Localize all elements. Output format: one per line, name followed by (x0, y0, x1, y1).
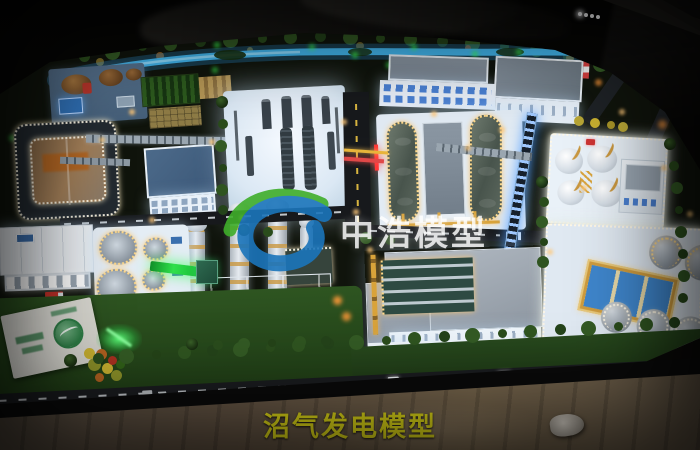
green-laser-glow (96, 324, 142, 354)
gasholder-mid-building (422, 122, 465, 219)
globe-arc (58, 324, 79, 340)
sign-green-text-mark (51, 306, 77, 316)
feedstock-platform (48, 63, 148, 126)
lattice-mast (335, 107, 340, 153)
grey-storage-tank (649, 235, 684, 270)
tank-sheen (479, 133, 496, 142)
dome-tank-platform (546, 133, 669, 229)
green-globe-logo (51, 316, 87, 352)
office-building-a (379, 54, 497, 110)
process-tower (321, 96, 330, 124)
gold-feed-pipe (568, 143, 583, 161)
long-digester-tank (470, 115, 502, 221)
trees-near-workshop (186, 338, 198, 350)
tank-sheen (395, 137, 411, 146)
grey-storage-tank (600, 301, 632, 333)
process-column (280, 128, 295, 191)
photo-biogas-plant-scale-model: 中浩模型 沼气发电模型 (0, 0, 700, 450)
sign-green-text-mark (15, 332, 44, 345)
building-b-roof (494, 56, 584, 103)
blue-placard (171, 237, 182, 244)
boulevard-trees-front (64, 354, 77, 367)
red-led-strip (374, 145, 379, 171)
white-dome-tank (591, 179, 622, 208)
gold-feed-pipe (601, 141, 616, 159)
office-a-wall (379, 80, 496, 110)
tank-led-rim (602, 303, 630, 331)
engine-workshop (364, 245, 545, 351)
blue-window-band (624, 198, 660, 207)
window-row-blue (384, 84, 492, 95)
lagoon-divider (65, 139, 70, 205)
round-digester-tank (143, 237, 169, 261)
lattice-mast (234, 111, 240, 161)
white-dome-tank (554, 147, 583, 174)
small-shed (116, 95, 135, 107)
tank-sheen (395, 167, 412, 176)
tree-column-left-of-plant (216, 96, 228, 108)
tree-column-mid-right (536, 176, 548, 188)
tank-led-rim (686, 246, 700, 279)
sign-green-text-mark (22, 344, 44, 354)
distant-light-strip (578, 12, 582, 16)
watermark-text: 中浩模型 (340, 206, 488, 255)
tree-column-east-edge (664, 138, 676, 150)
process-tower (245, 136, 254, 176)
lit-bay-doors (6, 275, 88, 290)
lit-pond (58, 97, 83, 115)
window-row-blue (383, 95, 491, 106)
loading-bays (4, 272, 91, 291)
caption-title: 沼气发电模型 (150, 405, 550, 444)
digester-dome-tank (98, 68, 123, 87)
process-tower (301, 95, 313, 127)
colorful-shrub-patch (84, 348, 95, 359)
straw-field (149, 105, 202, 129)
gold-spiral-pipes (579, 171, 592, 194)
lagoon-pool (29, 135, 106, 205)
process-column (302, 126, 317, 191)
tank-sheen (478, 167, 496, 176)
right-tank-farm-platform (542, 223, 700, 346)
red-utility-vehicle (586, 139, 595, 145)
receiving-hall (0, 224, 95, 303)
tank-sheen (397, 197, 413, 206)
process-tower (261, 99, 272, 129)
round-digester-tank (99, 230, 138, 265)
process-tower (281, 96, 293, 128)
conveyor-head-house (196, 260, 218, 284)
office-a-roof (388, 54, 489, 83)
receiving-roof (0, 224, 94, 275)
roof-sign-blue (16, 233, 34, 243)
yellow-bushes-right (574, 116, 584, 126)
watermark-swirl-logo (222, 184, 338, 274)
grey-storage-tank (684, 244, 700, 281)
crop-rows (140, 73, 200, 107)
red-mixer-unit (82, 82, 92, 94)
process-tower (327, 132, 336, 170)
side-building (618, 159, 665, 215)
white-dome-tank (586, 145, 617, 174)
rooftop-cooler-units (381, 257, 475, 314)
tank-led-rim (651, 237, 682, 268)
gold-feed-pipe (606, 175, 621, 193)
laser-streak (106, 328, 132, 348)
side-building-roof-panel (625, 164, 662, 192)
bluegrey-roof (144, 144, 217, 199)
